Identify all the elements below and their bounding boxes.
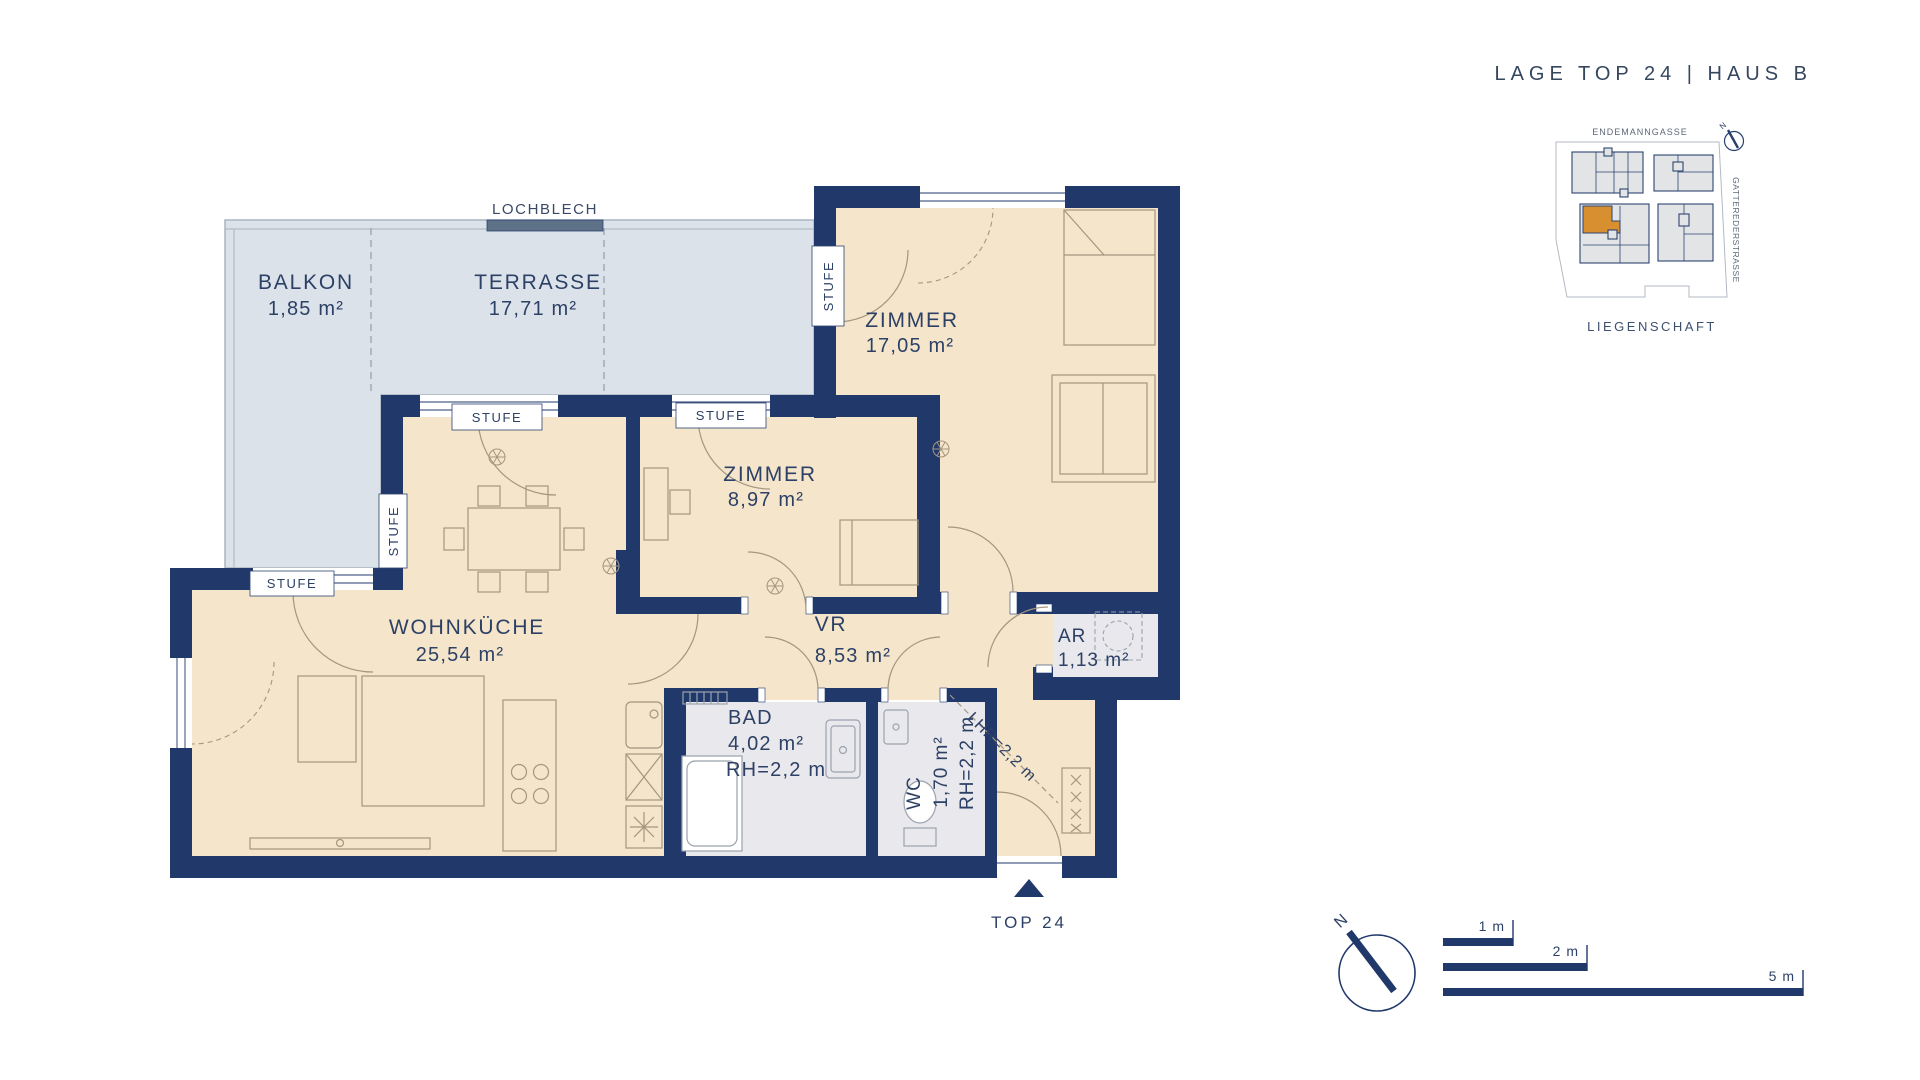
zimmer-gross-name: ZIMMER (865, 309, 959, 332)
compass-icon: N (1331, 911, 1415, 1011)
terrasse-name: TERRASSE (474, 271, 602, 294)
scale-1m-label: 1 m (1479, 918, 1505, 934)
svg-text:STUFE: STUFE (386, 506, 401, 557)
window-west (170, 658, 192, 748)
floorplan-drawing: STUFE STUFE STUFE STUFE STUFE LOCHBLECH … (0, 0, 1920, 1080)
balkon-area: 1,85 m² (268, 298, 344, 320)
site-building-highlighted (1580, 204, 1649, 263)
svg-text:STUFE: STUFE (821, 261, 836, 312)
entrance-arrow-icon (1014, 879, 1044, 897)
vr-area: 8,53 m² (815, 645, 891, 667)
bad-rh: RH=2,2 m (726, 759, 826, 781)
compass-north-label: N (1331, 911, 1351, 931)
terrasse-area: 17,71 m² (489, 298, 578, 320)
floor-wohnkueche-upper (403, 410, 640, 590)
svg-text:N: N (1718, 120, 1728, 131)
entrance-marker: TOP 24 (991, 879, 1067, 932)
balkon-name: BALKON (258, 271, 354, 294)
stufe-label: STUFE (379, 494, 407, 568)
site-building (1658, 204, 1713, 261)
zimmer-klein-name: ZIMMER (723, 463, 817, 486)
wohnkueche-area: 25,54 m² (416, 644, 505, 666)
wc-area: 1,70 m² (931, 736, 952, 807)
scale-5m-label: 5 m (1769, 968, 1795, 984)
floorplan-page: STUFE STUFE STUFE STUFE STUFE LOCHBLECH … (0, 0, 1920, 1080)
site-building (1572, 148, 1643, 197)
stufe-label: STUFE (452, 404, 542, 430)
street-top-label: ENDEMANNGASSE (1592, 127, 1688, 137)
scale-2m-label: 2 m (1553, 943, 1579, 959)
ar-name: AR (1058, 626, 1086, 647)
scale-bar: 1 m 2 m 5 m (1443, 918, 1803, 996)
lochblech-label: LOCHBLECH (492, 201, 598, 218)
wc-name: WC (904, 776, 925, 810)
mini-compass-icon: N (1718, 120, 1744, 150)
stufe-label: STUFE (250, 571, 334, 596)
window-zimmer-gross-top (920, 186, 1065, 208)
site-caption: LIEGENSCHAFT (1587, 319, 1717, 334)
site-building (1654, 155, 1713, 191)
svg-text:STUFE: STUFE (472, 410, 523, 425)
stufe-label: STUFE (676, 403, 766, 428)
bad-area: 4,02 m² (728, 733, 804, 755)
svg-text:STUFE: STUFE (696, 408, 747, 423)
ar-area: 1,13 m² (1058, 650, 1129, 671)
entrance-door-opening (997, 856, 1062, 878)
bad-name: BAD (728, 707, 773, 729)
vr-name: VR (815, 613, 848, 636)
svg-text:STUFE: STUFE (267, 576, 318, 591)
wohnkueche-name: WOHNKÜCHE (389, 616, 545, 639)
zimmer-gross-area: 17,05 m² (866, 335, 955, 357)
page-title: LAGE TOP 24 | HAUS B (1494, 63, 1812, 85)
stufe-label: STUFE (812, 246, 844, 326)
street-right-label: GATTEREDERSTRASSE (1731, 177, 1741, 283)
site-plan: ENDEMANNGASSE (1556, 120, 1744, 334)
zimmer-klein-area: 8,97 m² (728, 489, 804, 511)
entrance-label: TOP 24 (991, 913, 1067, 932)
lochblech-panel (487, 220, 603, 231)
